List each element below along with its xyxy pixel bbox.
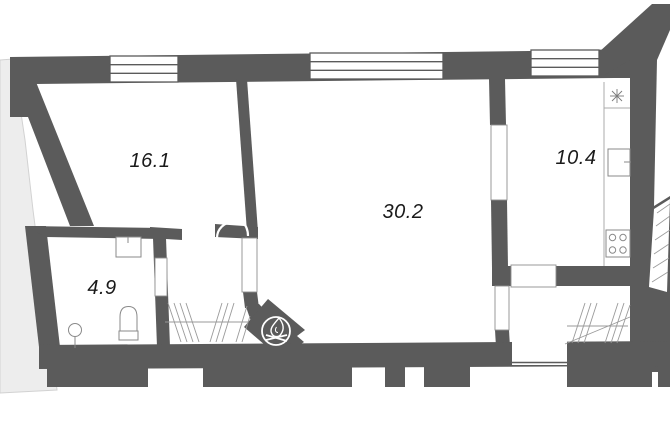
hatch-hall-closet xyxy=(165,303,250,342)
floor-plan-drawing: 16.1 30.2 10.4 4.9 xyxy=(0,0,670,446)
wall-kitchen-partition-upper xyxy=(489,79,506,125)
bottom-notch xyxy=(652,372,658,387)
label-room-16-1: 16.1 xyxy=(130,150,171,172)
window-room-16-1 xyxy=(110,56,178,82)
window-kitchen xyxy=(531,50,599,76)
wall-tooth-1 xyxy=(47,365,148,387)
wall-tooth-5 xyxy=(567,365,652,387)
washbasin xyxy=(69,324,82,349)
wall-tooth-3 xyxy=(385,365,405,387)
wall-kitchen-partition-lower xyxy=(491,200,508,268)
door-kitchen-corridor xyxy=(511,265,556,287)
vent-star-icon xyxy=(610,89,624,103)
stove-icon xyxy=(606,230,630,257)
door-bathroom xyxy=(155,258,167,296)
wall-tooth-2 xyxy=(203,365,352,387)
fixtures xyxy=(69,82,632,348)
toilet xyxy=(119,307,138,341)
window-room-30-2 xyxy=(310,53,443,79)
door-corridor-living xyxy=(495,286,509,330)
label-room-4-9: 4.9 xyxy=(87,277,116,299)
hatch-entry-closet xyxy=(565,303,630,344)
label-room-30-2: 30.2 xyxy=(383,201,424,223)
kitchen-sink xyxy=(608,149,631,176)
wall-tooth-6 xyxy=(658,365,670,387)
label-room-10-4: 10.4 xyxy=(556,147,597,169)
bathroom-sink xyxy=(116,237,141,257)
door-entrance xyxy=(512,341,567,365)
door-hall-living xyxy=(242,238,257,292)
floor-plan-canvas: 16.1 30.2 10.4 4.9 xyxy=(0,0,670,446)
door-kitchen-living xyxy=(491,125,507,200)
wall-partition-16-30 xyxy=(236,79,258,232)
wall-tooth-4 xyxy=(424,365,470,387)
wall-bottom xyxy=(39,341,670,369)
